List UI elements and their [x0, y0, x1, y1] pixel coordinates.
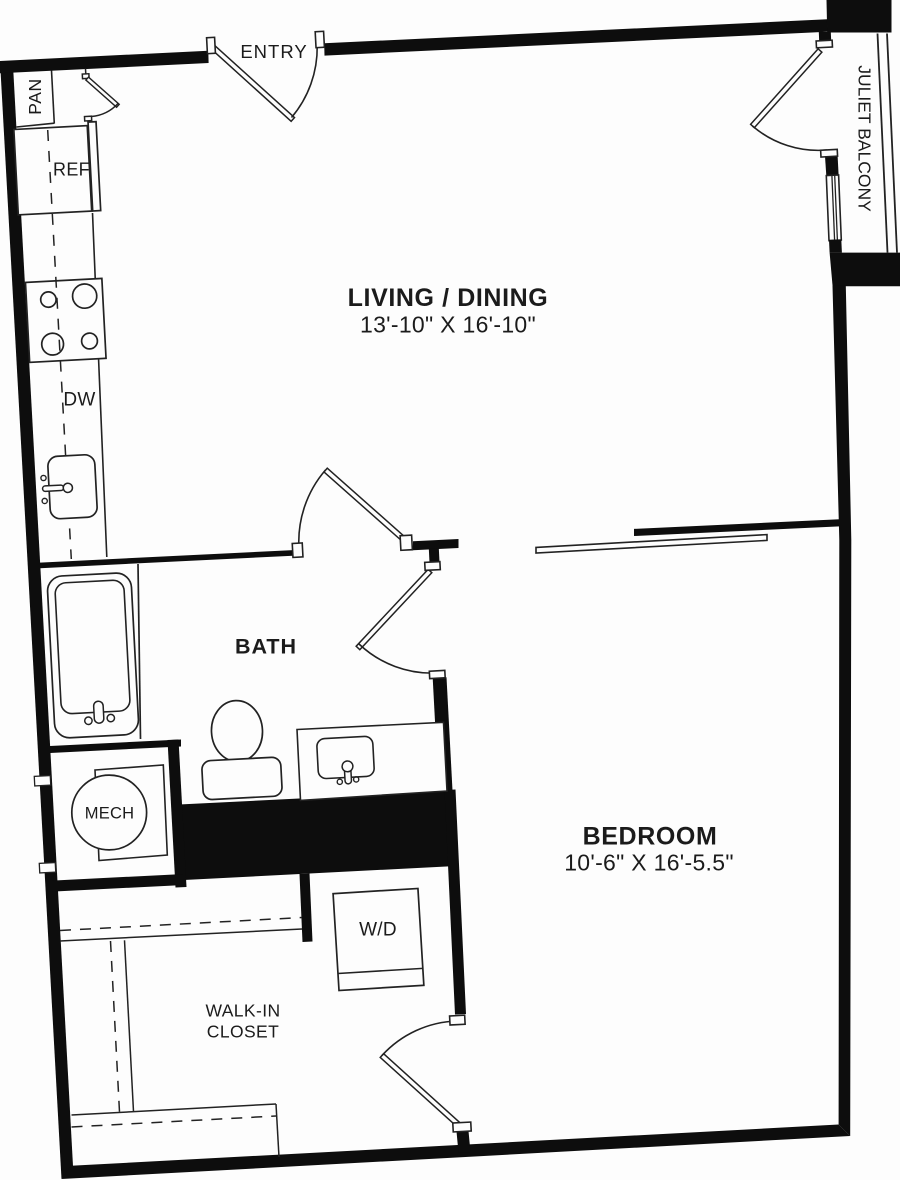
- svg-text:ENTRY: ENTRY: [240, 41, 307, 62]
- svg-text:PAN: PAN: [25, 78, 45, 114]
- svg-text:13'-10" X 16'-10": 13'-10" X 16'-10": [360, 312, 536, 338]
- svg-text:BATH: BATH: [235, 635, 297, 659]
- svg-text:DW: DW: [63, 390, 95, 411]
- svg-text:W/D: W/D: [359, 920, 397, 941]
- svg-text:REF: REF: [53, 160, 90, 180]
- svg-text:10'-6" X 16'-5.5": 10'-6" X 16'-5.5": [564, 850, 734, 876]
- svg-text:CLOSET: CLOSET: [207, 1021, 279, 1041]
- svg-text:JULIET BALCONY: JULIET BALCONY: [855, 65, 875, 212]
- svg-text:MECH: MECH: [85, 805, 134, 823]
- svg-text:WALK-IN: WALK-IN: [205, 1000, 280, 1020]
- svg-text:LIVING / DINING: LIVING / DINING: [348, 284, 549, 312]
- svg-text:BEDROOM: BEDROOM: [583, 823, 718, 851]
